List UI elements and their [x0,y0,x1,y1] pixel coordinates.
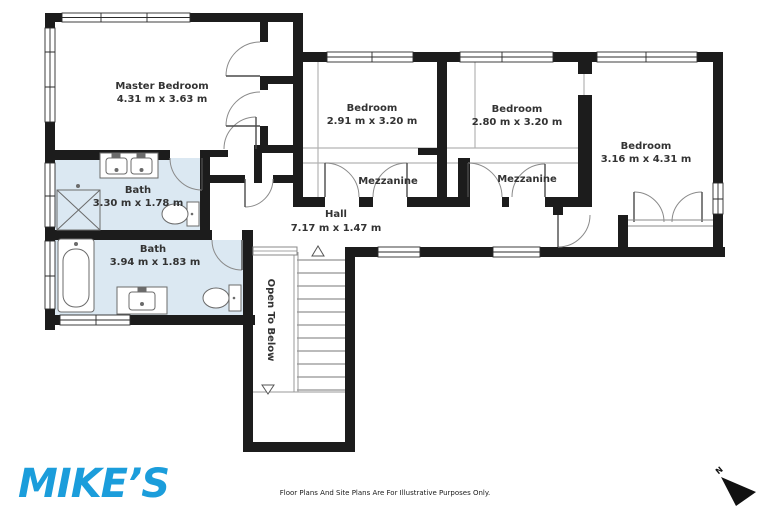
window-master-top [62,13,190,22]
dims-bath-1: 3.30 m x 1.78 m [93,198,184,209]
window-hall-bottom-1 [378,247,420,257]
double-vanity [100,153,158,178]
floor-plan: Master Bedroom 4.31 m x 3.63 m Bedroom 2… [0,0,768,512]
window-bedroom3-top [597,52,697,62]
window-bath2-bottom [60,315,130,325]
dims-bedroom-3: 3.16 m x 4.31 m [601,154,692,165]
walls [45,13,725,452]
north-label: N [714,465,725,476]
stair-direction-arrow-up [312,246,324,256]
bathtub [58,239,94,312]
disclaimer-text: Floor Plans And Site Plans Are For Illus… [280,489,490,497]
dims-master-bedroom: 4.31 m x 3.63 m [117,94,208,105]
label-bedroom-3: Bedroom [621,141,672,152]
label-bedroom-1: Bedroom [347,103,398,114]
floor-plan-page: Master Bedroom 4.31 m x 3.63 m Bedroom 2… [0,0,768,512]
dims-hall: 7.17 m x 1.47 m [291,223,382,234]
label-mezzanine-2: Mezzanine [497,174,557,185]
window-master-left [45,28,55,122]
dims-bedroom-1: 2.91 m x 3.20 m [327,116,418,127]
window-bedroom2-top [460,52,553,62]
window-bath1-left [45,163,55,227]
label-bedroom-2: Bedroom [492,104,543,115]
stair-railing [253,247,297,255]
stair-direction-arrow-down [262,385,274,394]
label-open-to-below: Open To Below [265,279,276,362]
dims-bath-2: 3.94 m x 1.83 m [110,257,201,268]
window-hall-bottom-2 [493,247,540,257]
label-master-bedroom: Master Bedroom [115,81,208,92]
label-hall: Hall [325,209,347,220]
window-bath2-left [45,241,55,309]
vanity [117,287,167,314]
window-bedroom1-top [327,52,413,62]
window-bedroom3-right [713,183,723,214]
label-mezzanine-1: Mezzanine [358,176,418,187]
wardrobe-front-lines [628,220,713,226]
stair-treads [297,260,345,390]
label-bath-2: Bath [140,244,166,255]
logo-mikes: MIKE’S [18,461,169,507]
north-arrow-icon: N [714,465,756,506]
label-bath-1: Bath [125,185,151,196]
dims-bedroom-2: 2.80 m x 3.20 m [472,117,563,128]
